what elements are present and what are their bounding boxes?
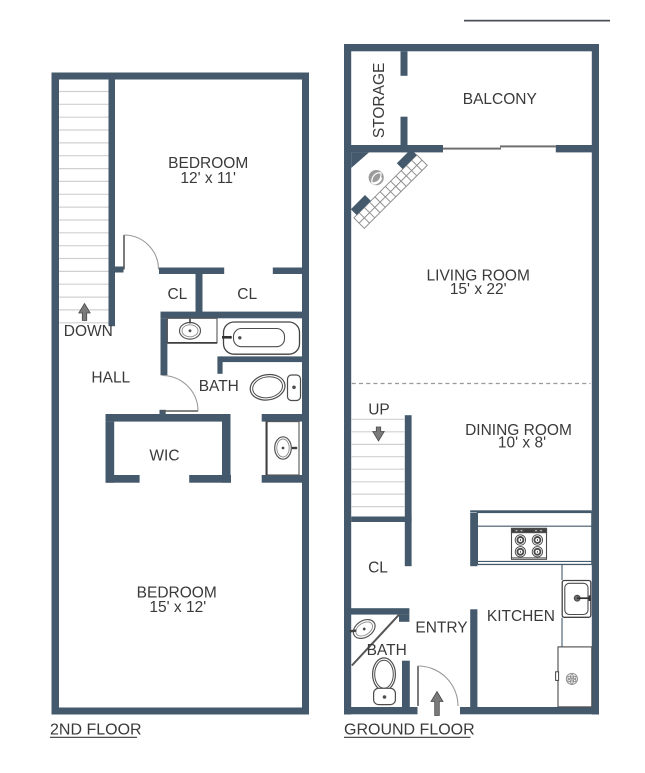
svg-text:2ND FLOOR: 2ND FLOOR <box>50 722 142 739</box>
svg-text:BATH: BATH <box>367 642 407 659</box>
svg-text:CL: CL <box>237 286 257 303</box>
svg-text:STORAGE: STORAGE <box>371 63 388 139</box>
svg-text:CL: CL <box>368 560 388 577</box>
svg-text:GROUND FLOOR: GROUND FLOOR <box>344 722 475 739</box>
svg-text:WIC: WIC <box>149 448 179 465</box>
svg-text:15' x 22': 15' x 22' <box>450 281 507 298</box>
svg-text:15' x 12': 15' x 12' <box>149 599 206 616</box>
svg-text:12' x 11': 12' x 11' <box>180 170 236 187</box>
svg-text:10' x 8': 10' x 8' <box>498 435 546 452</box>
svg-text:CL: CL <box>167 286 187 303</box>
svg-text:HALL: HALL <box>91 370 130 387</box>
svg-text:ENTRY: ENTRY <box>415 620 467 637</box>
svg-text:BALCONY: BALCONY <box>463 91 537 108</box>
svg-text:DOWN: DOWN <box>64 323 113 340</box>
svg-text:UP: UP <box>368 402 390 419</box>
svg-text:KITCHEN: KITCHEN <box>487 608 555 625</box>
svg-text:BATH: BATH <box>199 378 239 395</box>
